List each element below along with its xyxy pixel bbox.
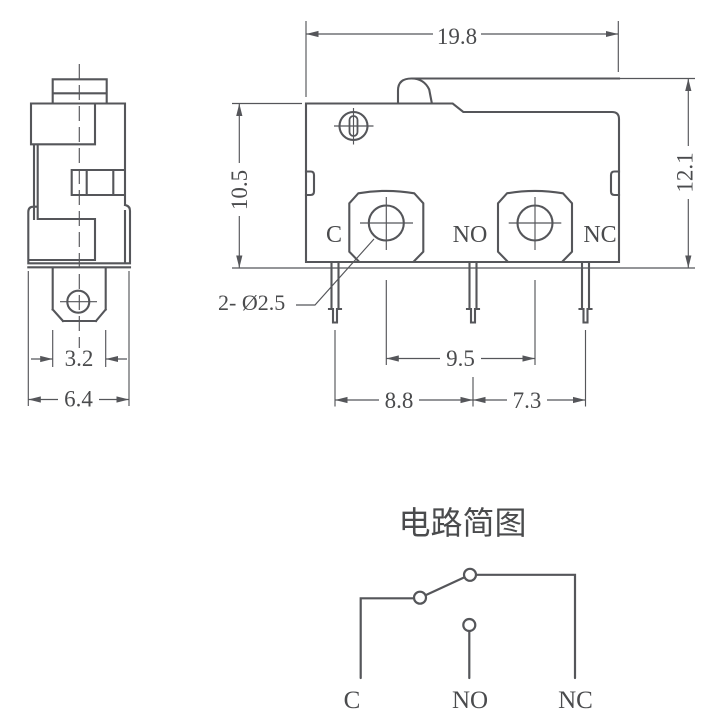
pin-common bbox=[329, 262, 341, 323]
terminal-label-common: C bbox=[326, 222, 342, 248]
circuit-contact-normally-closed bbox=[464, 569, 476, 581]
hole-diameter-note: 2- Ø2.5 bbox=[218, 239, 374, 315]
right-notch bbox=[611, 172, 619, 196]
front-dim-body-height: 10.5 bbox=[227, 104, 302, 269]
circuit-title: 电路简图 bbox=[398, 505, 526, 541]
side-dim-body-width-text: 6.4 bbox=[64, 387, 93, 412]
circuit-switch-blade bbox=[426, 577, 465, 595]
front-dim-pin-spacing: 8.8 7.3 bbox=[335, 330, 586, 413]
circuit-wire-normally-closed bbox=[476, 575, 575, 678]
leader-line bbox=[296, 239, 374, 305]
microswitch-technical-drawing: 3.2 6.4 bbox=[0, 0, 720, 721]
side-dim-body-width: 6.4 bbox=[28, 271, 129, 412]
hole-diameter-note-text: 2- Ø2.5 bbox=[218, 290, 285, 315]
circuit-contact-common bbox=[414, 592, 426, 604]
front-dim-total-height: 12.1 bbox=[619, 79, 698, 269]
circuit-wire-common bbox=[361, 598, 414, 678]
front-dim-pin-spacing-right-text: 7.3 bbox=[513, 388, 542, 413]
front-dim-width: 19.8 bbox=[306, 21, 618, 97]
circuit-label-common: C bbox=[344, 687, 361, 714]
mounting-ear-left bbox=[349, 191, 423, 262]
front-dim-hole-spacing: 9.5 bbox=[386, 280, 535, 371]
circuit-contact-normally-open bbox=[463, 619, 475, 631]
lever-arm bbox=[398, 79, 619, 103]
circuit-diagram: 电路简图 C NO NC bbox=[344, 505, 593, 714]
front-dim-pin-spacing-left-text: 8.8 bbox=[385, 388, 414, 413]
front-dim-width-text: 19.8 bbox=[437, 24, 477, 49]
circuit-label-normally-open: NO bbox=[452, 687, 488, 714]
side-dim-terminal-width-text: 3.2 bbox=[65, 346, 94, 371]
left-notch bbox=[306, 172, 314, 196]
front-view: C NO NC 19.8 10.5 12.1 bbox=[218, 21, 698, 413]
drawing-page: 3.2 6.4 bbox=[0, 0, 720, 721]
terminal-label-normally-closed: NC bbox=[583, 222, 616, 248]
pin-normally-closed bbox=[580, 262, 592, 323]
front-dim-total-height-text: 12.1 bbox=[673, 152, 698, 192]
side-view: 3.2 6.4 bbox=[28, 64, 130, 412]
front-dim-hole-spacing-text: 9.5 bbox=[446, 346, 475, 371]
terminal-label-normally-open: NO bbox=[453, 222, 488, 248]
screw-boss bbox=[334, 108, 374, 145]
circuit-label-normally-closed: NC bbox=[558, 687, 593, 714]
front-dim-body-height-text: 10.5 bbox=[227, 170, 252, 210]
pin-normally-open bbox=[467, 262, 479, 323]
side-dim-terminal-width: 3.2 bbox=[31, 330, 127, 371]
mounting-ear-right bbox=[498, 191, 572, 262]
